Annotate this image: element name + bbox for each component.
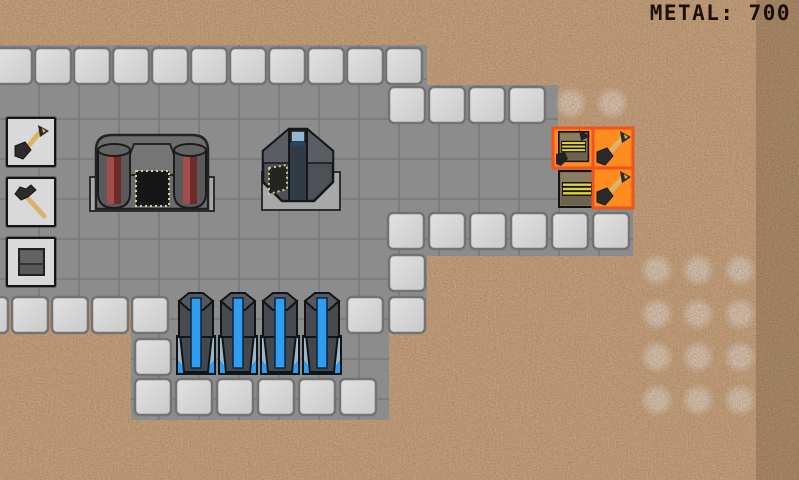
ore-deposit xyxy=(554,86,588,120)
wall-tile xyxy=(0,48,32,84)
wall-tile xyxy=(347,297,383,333)
ore-deposit xyxy=(681,253,715,287)
wall-tile xyxy=(152,48,188,84)
ore-deposit xyxy=(681,383,715,417)
storage-tank[interactable] xyxy=(219,293,257,374)
wall-tile xyxy=(509,87,545,123)
storage-tank[interactable] xyxy=(261,293,299,374)
ore-deposit xyxy=(723,253,757,287)
wall-tile xyxy=(230,48,266,84)
dig-order[interactable] xyxy=(593,128,633,168)
ore-deposit xyxy=(640,340,674,374)
dig-tool-button[interactable] xyxy=(6,117,56,167)
factory-building[interactable] xyxy=(90,135,214,211)
wall-tile xyxy=(269,48,305,84)
conveyor-belt[interactable] xyxy=(559,171,595,207)
dig-order[interactable] xyxy=(593,168,633,208)
wall-tile xyxy=(0,297,8,333)
wall-tile xyxy=(52,297,88,333)
wall-tile xyxy=(191,48,227,84)
wall-tile xyxy=(258,379,294,415)
hammer-icon xyxy=(11,182,51,222)
ore-deposit xyxy=(640,253,674,287)
ore-deposit xyxy=(681,340,715,374)
wall-tile xyxy=(74,48,110,84)
ore-deposit xyxy=(640,297,674,331)
wall-tile xyxy=(469,87,505,123)
shovel-icon xyxy=(11,122,51,162)
ore-deposit xyxy=(723,297,757,331)
wall-tile xyxy=(389,87,425,123)
wall-tile xyxy=(429,213,465,249)
game-world xyxy=(0,0,799,480)
wall-tile xyxy=(470,213,506,249)
wall-tile xyxy=(389,297,425,333)
metal-value: 700 xyxy=(749,1,791,25)
wall-tile xyxy=(388,213,424,249)
conveyor-build-order[interactable] xyxy=(553,128,593,168)
ore-deposit xyxy=(723,340,757,374)
wall-tile xyxy=(217,379,253,415)
ore-deposit xyxy=(681,297,715,331)
wall-tile xyxy=(135,339,171,375)
storage-tank[interactable] xyxy=(303,293,341,374)
wall-tile xyxy=(92,297,128,333)
wall-tile xyxy=(347,48,383,84)
wall-tile xyxy=(35,48,71,84)
map-edge-shade xyxy=(756,0,799,480)
build-tool-button[interactable] xyxy=(6,177,56,227)
wall-tile xyxy=(340,379,376,415)
wall-tile xyxy=(12,297,48,333)
metal-label: METAL: xyxy=(650,1,735,25)
wall-tile xyxy=(176,379,212,415)
wall-tool-button[interactable] xyxy=(6,237,56,287)
storage-tank[interactable] xyxy=(177,293,215,374)
wall-tile xyxy=(429,87,465,123)
wall-tile xyxy=(511,213,547,249)
wall-tile xyxy=(593,213,629,249)
block-icon xyxy=(11,242,51,282)
wall-tile xyxy=(299,379,335,415)
wall-tile xyxy=(386,48,422,84)
game-viewport: METAL:700 xyxy=(0,0,799,480)
ore-deposit xyxy=(723,383,757,417)
wall-tile xyxy=(113,48,149,84)
wall-tile xyxy=(552,213,588,249)
wall-tile xyxy=(308,48,344,84)
resource-hud: METAL:700 xyxy=(650,1,791,25)
wall-tile xyxy=(389,255,425,291)
ore-deposit xyxy=(595,86,629,120)
wall-tile xyxy=(135,379,171,415)
build-toolbar xyxy=(6,117,56,287)
wall-tile xyxy=(132,297,168,333)
ore-deposit xyxy=(640,383,674,417)
